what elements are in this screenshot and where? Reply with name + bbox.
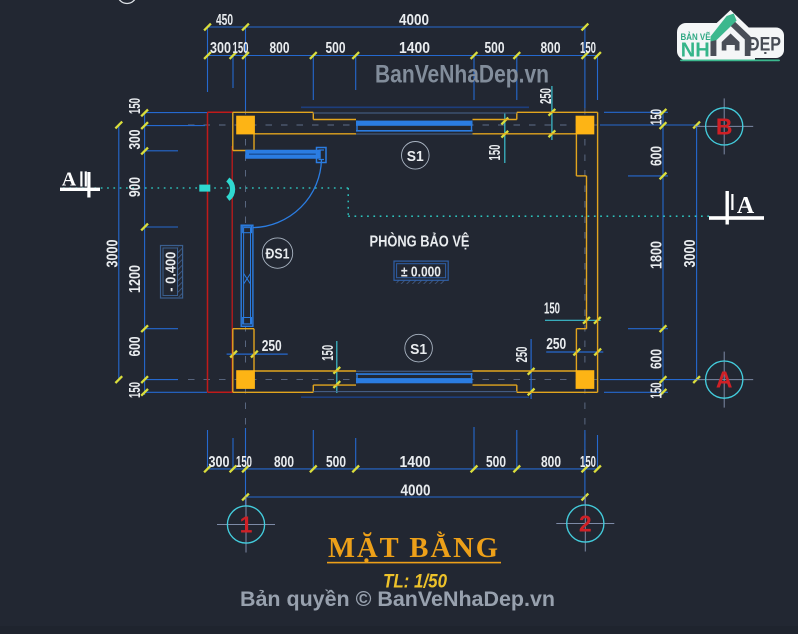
svg-text:800: 800 — [541, 40, 561, 57]
svg-text:Bản quyền © BanVeNhaDep.vn: Bản quyền © BanVeNhaDep.vn — [240, 588, 555, 611]
svg-text:250: 250 — [514, 347, 531, 363]
svg-text:300: 300 — [210, 40, 231, 57]
svg-text:PHÒNG BẢO VỆ: PHÒNG BẢO VỆ — [370, 233, 470, 251]
svg-text:S1: S1 — [410, 341, 427, 358]
svg-text:150: 150 — [127, 98, 144, 114]
svg-text:800: 800 — [274, 454, 294, 471]
svg-text:150: 150 — [236, 454, 252, 471]
svg-text:150: 150 — [487, 145, 504, 161]
svg-text:± 0.000: ± 0.000 — [401, 264, 441, 280]
svg-text:1: 1 — [240, 512, 253, 538]
svg-text:B: B — [716, 113, 733, 139]
svg-text:800: 800 — [541, 454, 561, 471]
svg-text:3000: 3000 — [682, 239, 699, 267]
svg-text:NH: NH — [681, 40, 710, 62]
svg-text:150: 150 — [233, 40, 249, 57]
svg-text:250: 250 — [538, 88, 555, 104]
svg-text:A: A — [62, 169, 77, 191]
svg-text:900: 900 — [127, 177, 144, 197]
svg-text:300: 300 — [127, 129, 144, 149]
svg-text:4000: 4000 — [399, 12, 429, 29]
svg-text:250: 250 — [262, 338, 282, 355]
svg-text:1200: 1200 — [127, 265, 144, 293]
svg-text:2: 2 — [579, 511, 592, 537]
svg-text:S1: S1 — [407, 148, 424, 165]
svg-text:A: A — [737, 193, 755, 219]
svg-text:150: 150 — [127, 382, 144, 398]
svg-text:500: 500 — [485, 40, 505, 57]
svg-text:MẶT BẰNG: MẶT BẰNG — [328, 532, 500, 564]
svg-text:1400: 1400 — [399, 40, 430, 57]
svg-text:150: 150 — [580, 454, 596, 471]
svg-text:150: 150 — [544, 301, 560, 318]
svg-text:800: 800 — [270, 40, 290, 57]
svg-text:150: 150 — [649, 109, 666, 125]
svg-text:600: 600 — [127, 336, 144, 356]
svg-text:600: 600 — [649, 349, 666, 369]
svg-text:A: A — [716, 367, 733, 393]
svg-text:250: 250 — [546, 336, 566, 353]
svg-text:600: 600 — [649, 146, 666, 166]
svg-text:500: 500 — [326, 40, 346, 57]
svg-text:150: 150 — [649, 382, 666, 398]
svg-text:300: 300 — [209, 454, 230, 471]
svg-text:150: 150 — [580, 40, 596, 57]
svg-text:1800: 1800 — [649, 241, 666, 269]
svg-text:BanVeNhaDep.vn: BanVeNhaDep.vn — [375, 61, 549, 89]
svg-text:ĐẸP: ĐẸP — [748, 35, 781, 56]
svg-text:- 0.400: - 0.400 — [164, 252, 180, 292]
svg-text:500: 500 — [486, 454, 506, 471]
svg-text:4000: 4000 — [401, 483, 431, 500]
svg-text:500: 500 — [326, 454, 346, 471]
svg-text:450: 450 — [216, 12, 233, 29]
svg-text:ĐS1: ĐS1 — [266, 247, 290, 263]
svg-text:3000: 3000 — [104, 239, 121, 267]
svg-text:150: 150 — [320, 345, 337, 361]
svg-text:1400: 1400 — [400, 454, 431, 471]
